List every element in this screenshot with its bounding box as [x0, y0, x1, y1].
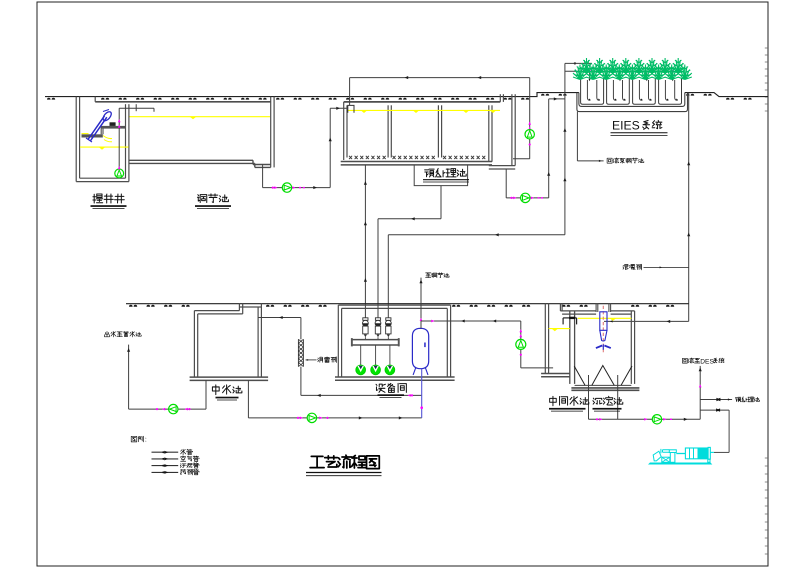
- svg-text:EIES: EIES: [612, 119, 640, 133]
- svg-text:DES: DES: [700, 358, 714, 365]
